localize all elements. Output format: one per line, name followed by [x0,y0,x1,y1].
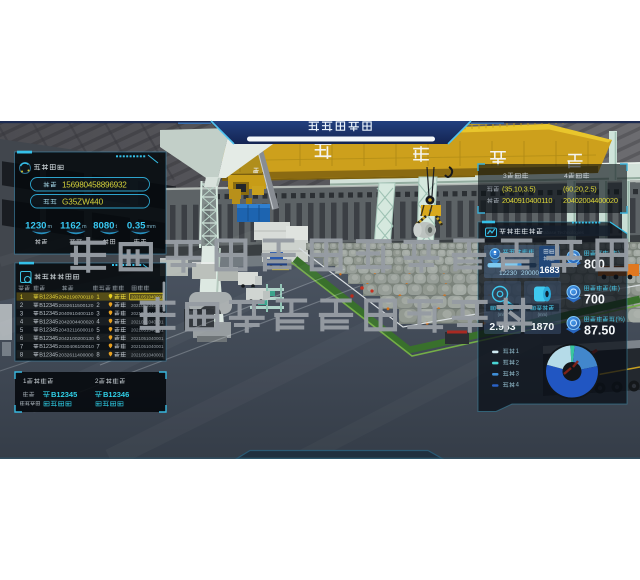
svg-text:3: 3 [503,173,507,180]
svg-text:20402004400020: 20402004400020 [563,196,618,205]
svg-text:2042004400020: 2042004400020 [59,319,95,325]
svg-text:B12345: B12345 [39,328,58,334]
svg-text:m: m [82,224,87,230]
svg-text:B12345: B12345 [39,336,58,342]
svg-text:m: m [48,224,53,230]
svg-text:2042100200130: 2042100200130 [59,336,95,342]
svg-text:2: 2 [95,378,99,385]
svg-text:1870: 1870 [531,321,555,333]
svg-text:G35ZW440: G35ZW440 [62,198,104,207]
svg-text:(: ( [609,286,611,292]
svg-text:B12345: B12345 [39,319,58,325]
svg-text:1: 1 [23,378,27,385]
svg-text:2021051040001: 2021051040001 [131,344,164,349]
svg-text:2021051040001: 2021051040001 [131,352,164,357]
svg-text:(60,20,2.5): (60,20,2.5) [563,185,597,194]
svg-text:B12345: B12345 [39,295,58,301]
svg-text:700: 700 [584,293,605,307]
svg-text:2043211600010: 2043211600010 [59,328,94,334]
svg-text:2030406100010: 2030406100010 [59,344,95,350]
svg-text:2032611500120: 2032611500120 [59,303,94,309]
svg-text:2032611400000: 2032611400000 [59,352,94,358]
svg-text:B12345: B12345 [39,311,58,317]
svg-text:B12345: B12345 [51,390,77,399]
svg-text:2042190700110: 2042190700110 [59,295,94,301]
svg-text:B12345: B12345 [39,344,58,350]
svg-text:B12345: B12345 [39,352,58,358]
svg-text:2021051040001: 2021051040001 [131,336,164,341]
svg-text:(35,10,3.5): (35,10,3.5) [502,185,536,194]
svg-text:): ) [618,286,620,292]
svg-text:(%): (%) [616,317,625,323]
svg-text:87.50: 87.50 [584,324,615,338]
svg-text:2040910400110: 2040910400110 [59,311,94,317]
svg-text:4: 4 [564,173,568,180]
svg-text:2040910400110: 2040910400110 [502,196,552,205]
svg-text:156980458896932: 156980458896932 [62,181,127,190]
svg-text:(mm): (mm) [538,312,548,317]
svg-text:B12345: B12345 [39,303,58,309]
svg-text:20000: 20000 [521,270,539,277]
svg-text:mm: mm [147,224,157,230]
svg-text:B12346: B12346 [103,390,129,399]
